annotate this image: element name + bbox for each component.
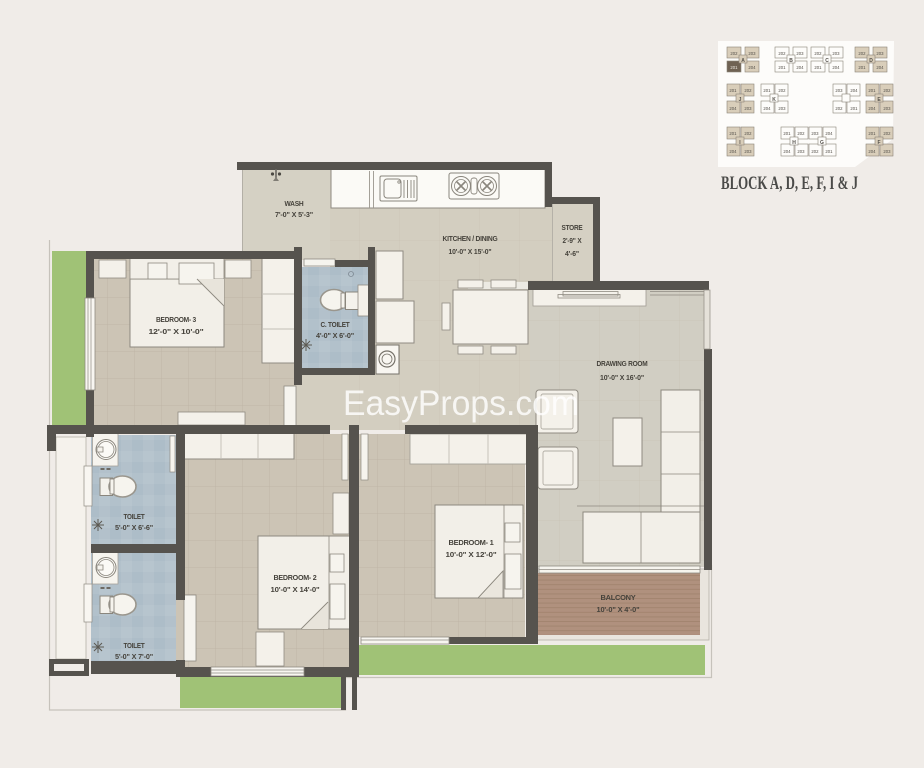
svg-text:203: 203 xyxy=(883,106,891,111)
svg-text:201: 201 xyxy=(778,65,786,70)
svg-text:DRAWING ROOM: DRAWING ROOM xyxy=(597,359,648,368)
svg-text:201: 201 xyxy=(763,88,771,93)
svg-text:C. TOILET: C. TOILET xyxy=(321,320,351,329)
svg-text:204: 204 xyxy=(796,65,804,70)
svg-text:203: 203 xyxy=(832,51,840,56)
svg-text:BALCONY: BALCONY xyxy=(601,593,636,602)
svg-text:12'-0" X 10'-0": 12'-0" X 10'-0" xyxy=(149,329,204,336)
svg-text:203: 203 xyxy=(835,88,843,93)
svg-text:201: 201 xyxy=(858,65,866,70)
svg-text:BEDROOM- 2: BEDROOM- 2 xyxy=(274,573,317,582)
svg-text:K: K xyxy=(772,97,776,103)
svg-text:203: 203 xyxy=(883,149,891,154)
svg-text:202: 202 xyxy=(778,51,786,56)
svg-text:5'-0" X 6'-6": 5'-0" X 6'-6" xyxy=(115,525,153,532)
svg-text:201: 201 xyxy=(729,131,737,136)
svg-text:TOILET: TOILET xyxy=(124,512,146,521)
svg-text:202: 202 xyxy=(797,131,805,136)
svg-text:B: B xyxy=(789,58,793,64)
svg-text:204: 204 xyxy=(763,106,771,111)
svg-text:J: J xyxy=(739,97,742,103)
svg-text:G: G xyxy=(820,140,824,146)
svg-text:202: 202 xyxy=(883,131,891,136)
svg-text:204: 204 xyxy=(876,65,884,70)
svg-text:204: 204 xyxy=(825,131,833,136)
svg-text:202: 202 xyxy=(778,88,786,93)
svg-text:201: 201 xyxy=(868,131,876,136)
svg-text:201: 201 xyxy=(850,106,858,111)
svg-text:5'-0" X 7'-0": 5'-0" X 7'-0" xyxy=(115,654,153,661)
svg-text:201: 201 xyxy=(729,88,737,93)
svg-text:10'-0" X 16'-0": 10'-0" X 16'-0" xyxy=(600,375,644,382)
svg-text:204: 204 xyxy=(868,106,876,111)
svg-text:204: 204 xyxy=(850,88,858,93)
svg-text:STORE: STORE xyxy=(562,223,583,232)
svg-text:202: 202 xyxy=(835,106,843,111)
svg-text:202: 202 xyxy=(744,88,752,93)
svg-text:2'-9" X: 2'-9" X xyxy=(563,238,582,245)
svg-text:4'-6": 4'-6" xyxy=(565,251,579,258)
svg-text:201: 201 xyxy=(783,131,791,136)
svg-text:D: D xyxy=(869,58,873,64)
svg-text:203: 203 xyxy=(797,149,805,154)
svg-text:202: 202 xyxy=(744,131,752,136)
svg-text:10'-0" X 15'-0": 10'-0" X 15'-0" xyxy=(449,249,492,256)
svg-text:204: 204 xyxy=(748,65,756,70)
svg-text:203: 203 xyxy=(811,131,819,136)
svg-text:202: 202 xyxy=(814,51,822,56)
svg-text:4'-0" X 6'-0": 4'-0" X 6'-0" xyxy=(316,333,354,340)
svg-text:7'-0" X 5'-3": 7'-0" X 5'-3" xyxy=(275,212,313,219)
svg-text:201: 201 xyxy=(825,149,833,154)
svg-text:C: C xyxy=(825,58,829,64)
svg-text:202: 202 xyxy=(858,51,866,56)
svg-text:202: 202 xyxy=(883,88,891,93)
svg-text:203: 203 xyxy=(744,106,752,111)
svg-text:204: 204 xyxy=(868,149,876,154)
svg-text:203: 203 xyxy=(748,51,756,56)
svg-text:F: F xyxy=(877,140,880,146)
svg-text:10'-0" X 14'-0": 10'-0" X 14'-0" xyxy=(271,587,320,594)
svg-text:BEDROOM- 1: BEDROOM- 1 xyxy=(449,538,494,547)
svg-text:203: 203 xyxy=(778,106,786,111)
svg-text:10'-0" X 4'-0": 10'-0" X 4'-0" xyxy=(597,607,640,614)
svg-text:204: 204 xyxy=(729,106,737,111)
svg-text:203: 203 xyxy=(876,51,884,56)
svg-text:203: 203 xyxy=(744,149,752,154)
svg-text:KITCHEN / DINING: KITCHEN / DINING xyxy=(443,234,499,243)
svg-text:204: 204 xyxy=(783,149,791,154)
svg-text:201: 201 xyxy=(730,65,738,70)
svg-text:TOILET: TOILET xyxy=(124,641,146,650)
svg-text:WASH: WASH xyxy=(285,199,304,208)
svg-text:204: 204 xyxy=(832,65,840,70)
svg-text:BLOCK A, D, E, F, I & J: BLOCK A, D, E, F, I & J xyxy=(721,173,858,194)
svg-text:BEDROOM- 3: BEDROOM- 3 xyxy=(156,315,196,324)
svg-text:201: 201 xyxy=(814,65,822,70)
svg-text:202: 202 xyxy=(811,149,819,154)
svg-text:204: 204 xyxy=(729,149,737,154)
svg-text:10'-0" X 12'-0": 10'-0" X 12'-0" xyxy=(446,552,497,559)
svg-text:H: H xyxy=(792,140,796,146)
svg-text:201: 201 xyxy=(868,88,876,93)
svg-text:203: 203 xyxy=(796,51,804,56)
svg-text:A: A xyxy=(741,58,745,64)
svg-text:EasyProps.com: EasyProps.com xyxy=(343,384,579,423)
svg-text:202: 202 xyxy=(730,51,738,56)
